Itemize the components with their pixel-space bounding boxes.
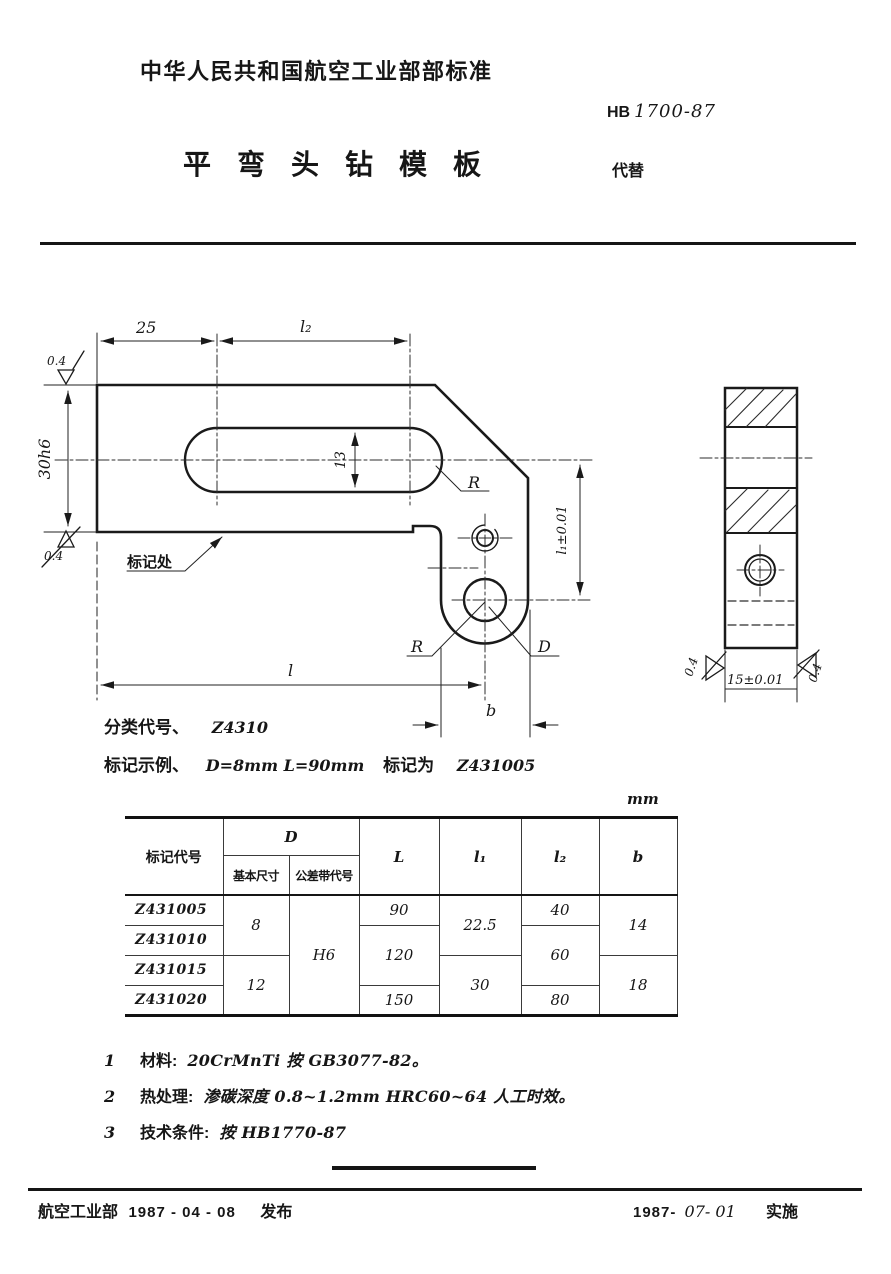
cell-d-basic-1: 8	[223, 895, 289, 955]
cell-l1-1: 22.5	[439, 895, 521, 955]
col-header-l2: l₂	[521, 818, 599, 896]
dim-l1-label: l₁±0.01	[555, 505, 570, 554]
col-header-d: D	[223, 818, 359, 856]
cell-l-4: 150	[359, 985, 439, 1015]
cell-code-1: Z431005	[125, 895, 223, 925]
side-hidden-lines	[728, 601, 794, 625]
marking-example-mid: 标记为	[383, 756, 434, 775]
center-lines	[55, 334, 592, 702]
dim-l-label: l	[288, 661, 293, 680]
diameter-label: D	[537, 637, 551, 656]
note-material: 1 材料: 20CrMnTi 按 GB3077-82。	[104, 1047, 744, 1083]
footer-issue: 航空工业部 1987 - 04 - 08 发布	[38, 1198, 292, 1222]
note-number: 1	[104, 1051, 140, 1070]
marking-place-label: 标记处	[126, 553, 173, 571]
footer-org: 航空工业部	[38, 1204, 118, 1221]
footer-issue-date: 1987 - 04 - 08	[128, 1204, 235, 1221]
footer-impl-date-printed: 1987-	[633, 1204, 676, 1221]
standard-code: HB1700-87	[607, 101, 716, 122]
marking-example-line: 标记示例、 D=8mm L=90mm 标记为 Z431005	[104, 751, 535, 776]
roughness-top-left-value: 0.4	[47, 354, 66, 368]
classification-label: 分类代号、	[104, 718, 189, 737]
side-center-lines	[700, 458, 812, 596]
note-value: 20CrMnTi 按 GB3077-82。	[187, 1047, 428, 1071]
dim-30h6-label: 30h6	[35, 439, 54, 480]
end-of-text-line	[332, 1166, 536, 1170]
footer-implementation: 1987- 07- 01 实施	[633, 1198, 798, 1222]
roughness-side-left-value: 0.4	[682, 656, 701, 678]
cell-l2-2: 60	[521, 925, 599, 985]
document-title: 平弯头钻模板	[183, 143, 507, 183]
header-rule	[40, 242, 856, 245]
radius-label-top: R	[467, 473, 480, 492]
table-unit-label: mm	[627, 790, 659, 808]
note-value: 渗碳深度 0.8~1.2mm HRC60~64 人工时效。	[203, 1083, 574, 1107]
footer-impl-label: 实施	[766, 1204, 798, 1221]
col-header-d-basic: 基本尺寸	[223, 856, 289, 896]
col-header-code: 标记代号	[125, 818, 223, 896]
notes-section: 1 材料: 20CrMnTi 按 GB3077-82。 2 热处理: 渗碳深度 …	[104, 1047, 744, 1155]
col-header-l1: l₁	[439, 818, 521, 896]
note-label: 技术条件:	[140, 1119, 209, 1143]
footer-impl-date-hand: 07- 01	[685, 1202, 736, 1221]
leader-lines	[127, 466, 559, 656]
standard-code-prefix: HB	[607, 104, 630, 121]
technical-drawing: 25 l₂ 0.4 0.4 30h6 13 标记处 R R D l₁±0.01 …	[30, 280, 840, 745]
classification-line: 分类代号、 Z4310	[104, 713, 268, 738]
cell-l2-1: 40	[521, 895, 599, 925]
note-technical-conditions: 3 技术条件: 按 HB1770-87	[104, 1119, 744, 1155]
cell-code-2: Z431010	[125, 925, 223, 955]
side-view-hatching	[725, 388, 796, 532]
dim-b-label: b	[486, 701, 496, 720]
classification-code: Z4310	[212, 718, 268, 737]
standard-document-page: 中华人民共和国航空工业部部标准 HB1700-87 平弯头钻模板 代替	[0, 0, 891, 1274]
cell-code-4: Z431020	[125, 985, 223, 1015]
cell-d-tol: H6	[289, 895, 359, 1015]
dim-25-label: 25	[135, 318, 156, 337]
cell-l-1: 90	[359, 895, 439, 925]
col-header-d-tol: 公差带代号	[289, 856, 359, 896]
cell-d-basic-2: 12	[223, 955, 289, 1015]
note-label: 材料:	[140, 1047, 177, 1071]
dimension-lines	[44, 333, 580, 737]
col-header-b: b	[599, 818, 677, 896]
dim-l2-label: l₂	[300, 317, 312, 336]
table-row: Z431010 120 60	[125, 925, 677, 955]
cell-l2-4: 80	[521, 985, 599, 1015]
footer-issue-label: 发布	[260, 1204, 292, 1221]
radius-label-bottom: R	[410, 637, 423, 656]
standard-code-number: 1700-87	[634, 101, 716, 122]
note-label: 热处理:	[140, 1083, 193, 1107]
table-row: Z431005 8 H6 90 22.5 40 14	[125, 895, 677, 925]
note-number: 2	[104, 1087, 140, 1106]
size-table: 标记代号 D L l₁ l₂ b 基本尺寸 公差带代号 Z431005 8 H6…	[125, 816, 678, 1017]
side-width-dim-label: 15±0.01	[727, 673, 783, 688]
marking-example-values: D=8mm L=90mm	[206, 756, 365, 775]
col-header-l: L	[359, 818, 439, 896]
marking-example-label: 标记示例、	[104, 756, 189, 775]
note-number: 3	[104, 1123, 140, 1142]
marking-example-code: Z431005	[457, 756, 535, 775]
table-row: Z431020 150 80	[125, 985, 677, 1015]
cell-b-2: 18	[599, 955, 677, 1015]
cell-l1-2: 30	[439, 955, 521, 1015]
dim-13-label: 13	[333, 451, 349, 469]
note-value: 按 HB1770-87	[219, 1119, 346, 1143]
roughness-side-right-value: 0.4	[806, 662, 825, 684]
cell-code-3: Z431015	[125, 955, 223, 985]
note-heat-treatment: 2 热处理: 渗碳深度 0.8~1.2mm HRC60~64 人工时效。	[104, 1083, 744, 1119]
supersedes-label: 代替	[612, 157, 644, 181]
footer-rule	[28, 1188, 862, 1191]
roughness-bottom-left-value: 0.4	[44, 549, 63, 563]
cell-b-1: 14	[599, 895, 677, 955]
standard-org-title: 中华人民共和国航空工业部部标准	[140, 54, 493, 86]
cell-l-2: 120	[359, 925, 439, 985]
